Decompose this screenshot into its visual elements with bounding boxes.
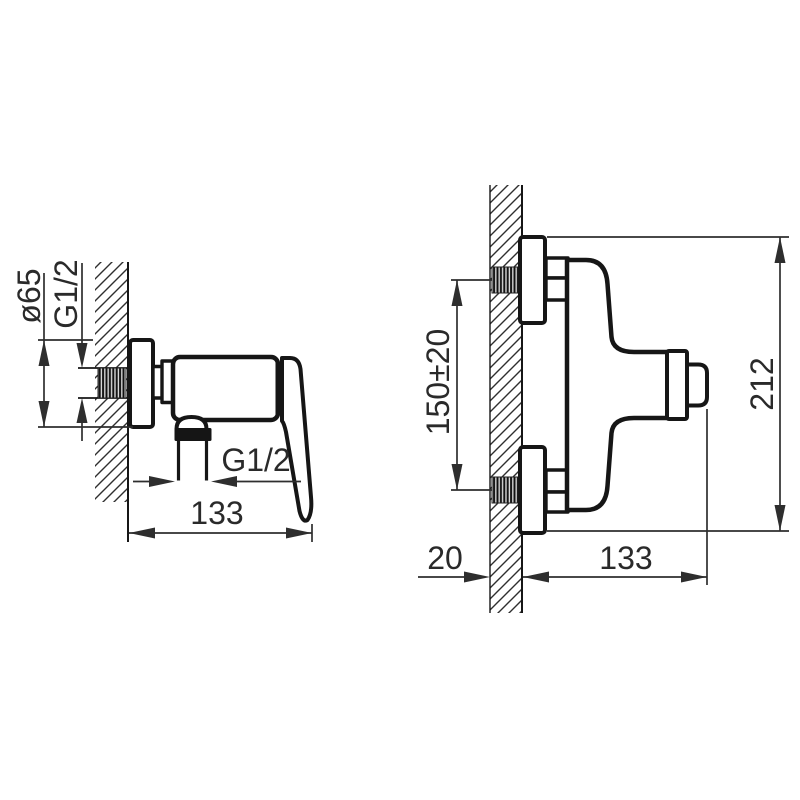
lower-connector-nut-front	[546, 470, 568, 512]
flange-side	[130, 340, 153, 427]
lower-flange-front	[520, 447, 545, 533]
arrowhead-up	[452, 280, 463, 306]
mixer-body-front	[567, 260, 668, 510]
technical-drawing: ø65 G1/2 G1/2 133	[0, 0, 800, 800]
arrowhead-up	[39, 340, 50, 366]
inlet-connector-side	[78, 368, 128, 398]
lower-thread-front	[492, 477, 520, 503]
upper-flange-front	[520, 237, 545, 323]
front-view: 150±20 212 20 133	[418, 185, 789, 613]
dim-depth-side: 133	[129, 495, 312, 542]
dim-outlet-thread: G1/2	[133, 442, 301, 487]
upper-thread-front	[492, 267, 520, 293]
knob-cap	[687, 365, 707, 406]
label-flange-diameter: ø65	[11, 268, 47, 323]
lever-handle-side	[282, 358, 311, 521]
label-connection-spacing: 150±20	[420, 329, 456, 436]
arrowhead-down	[775, 505, 786, 531]
drawing-canvas: ø65 G1/2 G1/2 133	[0, 0, 800, 800]
side-view: ø65 G1/2 G1/2 133	[11, 259, 312, 542]
label-depth-side: 133	[190, 495, 243, 531]
arrowhead-right	[464, 572, 490, 583]
label-depth-front: 133	[599, 540, 652, 576]
wall-section-front	[490, 185, 522, 613]
label-overall-height: 212	[744, 357, 780, 410]
outlet-dome	[177, 417, 207, 429]
dim-connection-spacing: 150±20	[420, 280, 492, 490]
label-outlet-thread: G1/2	[221, 442, 290, 478]
shower-outlet-side	[175, 417, 212, 481]
inlet-thread-side	[98, 368, 126, 398]
connector-nut-side	[153, 361, 173, 403]
arrowhead-right	[149, 476, 175, 487]
arrowhead-right	[286, 528, 312, 539]
handle-knob-front	[667, 351, 707, 419]
arrowhead-left	[129, 528, 155, 539]
arrowhead-down	[77, 343, 88, 368]
label-inlet-thread: G1/2	[48, 259, 84, 328]
wall-hatch-front	[490, 185, 522, 613]
arrowhead-right	[681, 572, 707, 583]
mixer-body-side	[173, 357, 278, 420]
label-wall-thickness: 20	[427, 540, 463, 576]
arrowhead-down	[39, 401, 50, 427]
outlet-seal-nut	[175, 428, 212, 441]
knob-base-plate	[667, 351, 687, 419]
dim-inlet-thread: G1/2	[48, 259, 88, 441]
dim-wall-thickness: 20	[418, 540, 490, 583]
arrowhead-up	[775, 237, 786, 263]
arrowhead-up	[77, 398, 88, 423]
upper-connector-nut-front	[546, 258, 568, 300]
arrowhead-left	[523, 572, 549, 583]
wall-section-side	[95, 262, 128, 542]
arrowhead-down	[452, 464, 463, 490]
